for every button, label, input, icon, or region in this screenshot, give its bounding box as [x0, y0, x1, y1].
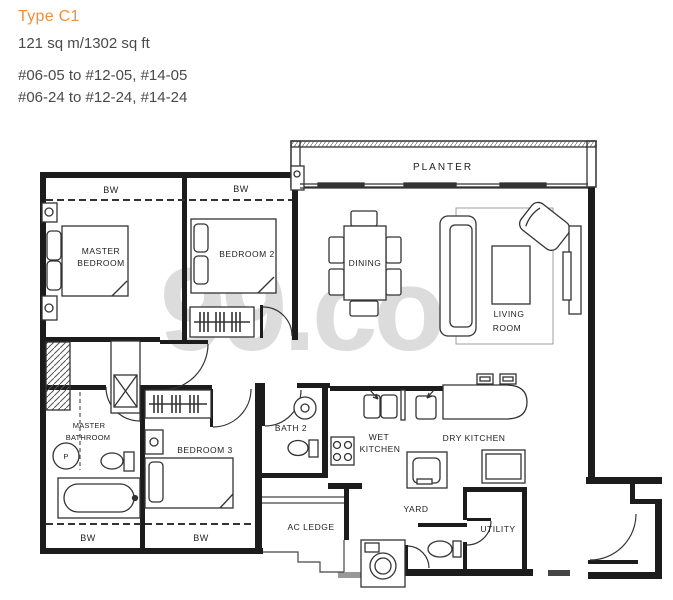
- dry-kitchen-fixtures: [407, 450, 525, 488]
- wall-right-outer: [588, 187, 595, 483]
- tv-set: [563, 252, 571, 300]
- label-bath2: BATH 2: [275, 423, 307, 433]
- label-planter: PLANTER: [413, 162, 473, 173]
- wall-top-bedrooms: [40, 172, 298, 178]
- label-master-bedroom-2: BEDROOM: [77, 258, 124, 268]
- label-dining: DINING: [349, 258, 382, 268]
- yard-fixtures: [361, 540, 461, 587]
- label-bw-bottom-left: BW: [80, 533, 96, 543]
- wall-br3-bath2-divider: [255, 383, 262, 550]
- floorplan-drawing: PLANTER BW BW BW BW MASTER BEDROOM BEDRO…: [0, 0, 673, 600]
- bedroom3-sidetable: [145, 430, 163, 454]
- wall-threshold: [548, 570, 570, 576]
- bath2-toilet-bowl: [288, 441, 308, 456]
- kitchen-sink-2: [381, 395, 397, 418]
- wall-column-1: [42, 203, 57, 222]
- label-bw-bottom-right: BW: [193, 533, 209, 543]
- label-dry-kitchen: DRY KITCHEN: [443, 433, 506, 443]
- counter-block-1-detail: [417, 479, 432, 484]
- mbath-toilet-tank: [124, 452, 134, 471]
- label-bw-top-left: BW: [103, 185, 119, 195]
- dining-chair-top: [351, 211, 377, 226]
- bath2-toilet-tank: [309, 440, 318, 457]
- sofa-seat: [450, 225, 472, 327]
- label-living-1: LIVING: [494, 309, 525, 319]
- wall-utility-left-lower: [463, 542, 467, 572]
- master-bedroom-furniture: [42, 203, 140, 413]
- wall-bottom-left: [40, 548, 263, 554]
- label-master-bath-1: MASTER: [73, 421, 106, 430]
- master-bed-pillow-1: [47, 231, 61, 260]
- dining-chair-l2: [329, 269, 344, 295]
- label-master-bath-2: BATHROOM: [66, 433, 110, 442]
- wall-right-lower: [655, 503, 662, 579]
- wall-utility-top: [463, 487, 527, 492]
- wc-door: [405, 545, 429, 569]
- wall-utility-right: [522, 487, 527, 571]
- wc-toilet-tank: [453, 541, 461, 557]
- planter-window-seg1: [318, 183, 364, 187]
- kitchen-sink-3: [416, 396, 436, 419]
- main-entrance-door: [588, 514, 638, 564]
- mbath-toilet-bowl: [101, 453, 123, 469]
- washing-machine-drum: [370, 553, 396, 579]
- bedroom2-door: [260, 305, 292, 338]
- master-bedroom-door: [160, 340, 208, 390]
- master-bed-pillow-2: [47, 261, 61, 290]
- planter-hatch-band: [291, 141, 596, 147]
- wall-mbr-br2-divider: [182, 172, 187, 340]
- bathtub-inner: [64, 484, 134, 512]
- wall-wc-top: [418, 523, 467, 527]
- bedroom2-pillow-1: [194, 224, 208, 252]
- bedroom3-pillow: [149, 462, 163, 502]
- dining-chair-r1: [386, 237, 401, 263]
- kitchen-island: [443, 385, 527, 419]
- bath2-basin: [294, 397, 316, 419]
- planter-window-seg3: [500, 183, 546, 187]
- dining-chair-bottom: [350, 301, 378, 316]
- wall-foyer-top: [586, 477, 662, 484]
- label-bedroom3: BEDROOM 3: [177, 445, 233, 455]
- label-wet-kitchen-1: WET: [369, 432, 389, 442]
- label-utility: UTILITY: [480, 524, 515, 534]
- label-ac-ledge: AC LEDGE: [288, 522, 335, 532]
- label-master-bedroom-1: MASTER: [82, 246, 120, 256]
- bedroom3-door: [210, 389, 251, 427]
- wall-corridor-gray: [338, 572, 362, 578]
- bedroom2-pillow-2: [194, 256, 208, 284]
- label-wet-kitchen-2: KITCHEN: [360, 444, 401, 454]
- wall-bottom-yard: [405, 569, 533, 576]
- planter-window-seg2: [404, 183, 456, 187]
- ac-ledge-outline: [262, 497, 344, 572]
- stove: [331, 437, 354, 465]
- floorplan-page: Type C1 121 sq m/1302 sq ft #06-05 to #1…: [0, 0, 673, 600]
- wc-toilet-bowl: [428, 541, 452, 557]
- label-living-2: ROOM: [493, 323, 521, 333]
- bathtub-tap: [133, 496, 138, 501]
- wall-utility-left-upper: [463, 487, 467, 520]
- wall-kitchen-counter-back: [330, 386, 443, 391]
- label-bw-top-right: BW: [233, 184, 249, 194]
- dining-chair-r2: [386, 269, 401, 295]
- wall-bath2-top-stub: [255, 383, 265, 388]
- wall-br2-right: [292, 186, 298, 340]
- master-wardrobe: [46, 342, 70, 410]
- wall-bath2-right: [322, 383, 328, 478]
- island-stool-1-inner: [480, 377, 490, 381]
- wall-yard-left: [344, 483, 349, 540]
- planter-post: [291, 166, 304, 190]
- coffee-table: [492, 246, 530, 304]
- washing-machine-panel: [365, 543, 379, 552]
- wall-column-2: [42, 296, 57, 320]
- wall-bath2-bottom: [255, 473, 328, 478]
- planter-right-column: [587, 141, 596, 187]
- label-bedroom2: BEDROOM 2: [219, 249, 275, 259]
- bedroom2-furniture: [190, 219, 276, 337]
- counter-block-2-inner: [486, 454, 521, 479]
- dining-chair-l1: [329, 237, 344, 263]
- wall-left-outer: [40, 172, 46, 554]
- wall-wetkitchen-bottom: [328, 483, 362, 489]
- wall-bottom-entry: [588, 572, 662, 579]
- label-yard: YARD: [404, 504, 429, 514]
- island-stool-2-inner: [503, 377, 513, 381]
- kitchen-tap-divider: [401, 390, 405, 420]
- label-shower-p: P: [63, 452, 68, 461]
- wall-mbr-bottom: [40, 337, 160, 342]
